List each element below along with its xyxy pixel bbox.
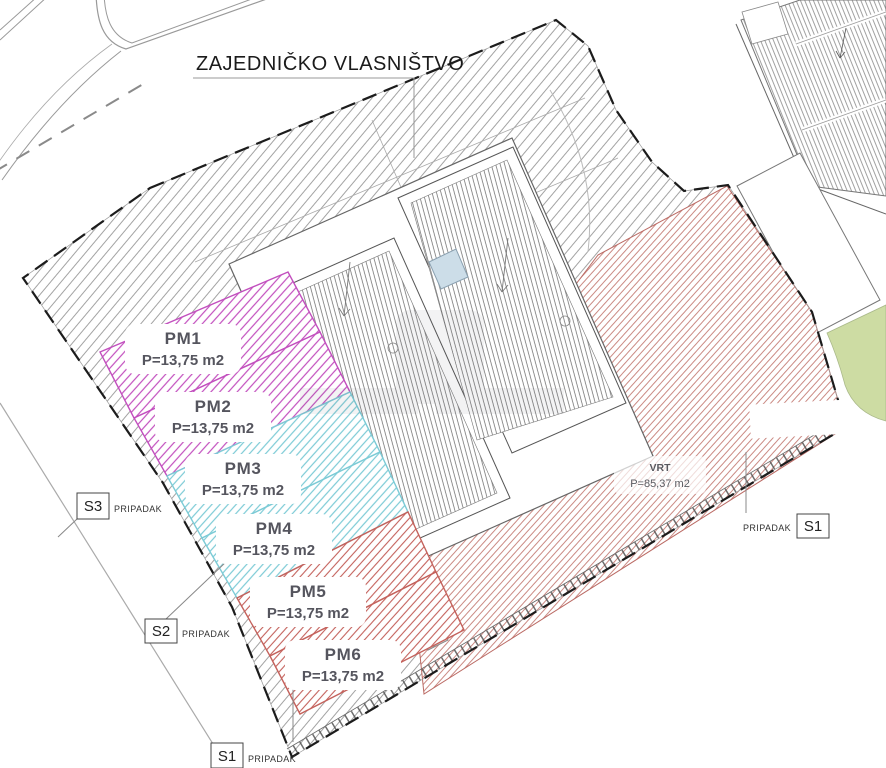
s1-bottom-note: PRIPADAK [248,754,296,764]
site-plan-page: ZAJEDNIČKO VLASNIŠTVO PM1 P=13,75 m2 PM2… [0,0,886,768]
pm4-label: PM4 P=13,75 m2 [216,514,332,564]
pm2-label: PM2 P=13,75 m2 [155,392,271,442]
road-corner-line [0,0,38,30]
s3-leader [58,519,77,537]
pm3-id: PM3 [225,459,262,478]
pm2-id: PM2 [195,397,232,416]
pm4-area-value: P=13,75 m2 [233,542,315,559]
s1-right-note: PRIPADAK [743,523,791,533]
section-box-s2: S2 PRIPADAK [145,619,230,643]
pm3-area-value: P=13,75 m2 [202,482,284,499]
pm5-id: PM5 [290,582,327,601]
section-box-s1-right: PRIPADAK S1 [743,514,829,538]
s3-note: PRIPADAK [114,504,162,514]
pm5-label: PM5 P=13,75 m2 [250,577,366,627]
pm6-area-value: P=13,75 m2 [302,668,384,685]
pm2-area-value: P=13,75 m2 [172,420,254,437]
road-edge-north-outer [96,0,292,49]
s2-id: S2 [152,623,170,640]
section-box-s1-bottom: S1 PRIPADAK [211,743,296,768]
common-ownership-label: ZAJEDNIČKO VLASNIŠTVO [196,52,464,75]
s1-right-id: S1 [804,518,822,535]
pm5-area-value: P=13,75 m2 [267,605,349,622]
road-centerline-dashed [0,80,150,172]
s2-note: PRIPADAK [182,629,230,639]
pm1-label: PM1 P=13,75 m2 [125,324,241,374]
pm1-area-value: P=13,75 m2 [142,352,224,369]
pm6-label: PM6 P=13,75 m2 [285,640,401,690]
road-edge-west-inner [0,44,112,166]
pm6-id: PM6 [325,645,362,664]
section-box-s3: S3 PRIPADAK [77,493,162,519]
s1-bottom-id: S1 [218,748,236,765]
site-plan-drawing: ZAJEDNIČKO VLASNIŠTVO PM1 P=13,75 m2 PM2… [0,0,886,768]
s3-id: S3 [84,498,102,515]
pm3-label: PM3 P=13,75 m2 [185,454,301,504]
pm4-id: PM4 [256,519,293,538]
blank-label-box [749,399,853,438]
road-edge-west-outer [2,51,121,180]
garden-area-value: P=85,37 m2 [630,478,690,490]
road-corner-line [0,0,48,40]
s2-leader [166,561,227,619]
pm1-id: PM1 [165,329,202,348]
garden-id: VRT [650,462,672,474]
garden-label: VRT P=85,37 m2 [614,456,706,494]
road-edge-north-inner [104,0,298,43]
